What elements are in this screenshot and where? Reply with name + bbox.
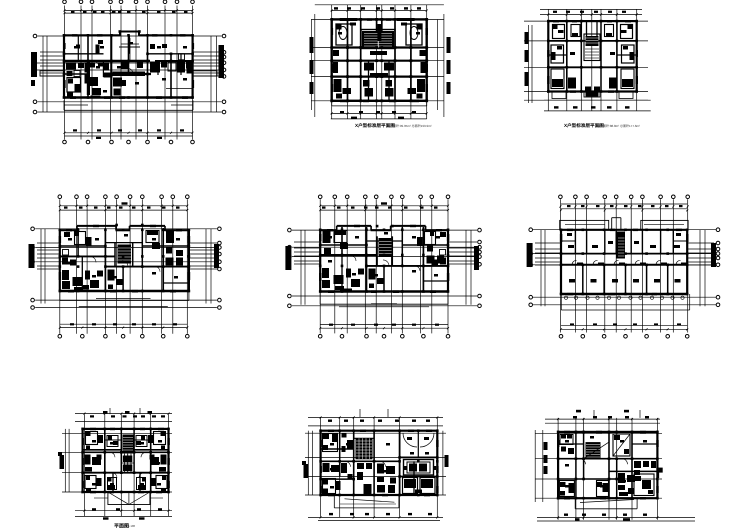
svg-text:每户面积:88.8m² 总面积177.6m²: 每户面积:88.8m² 总面积177.6m² xyxy=(597,124,640,128)
svg-text:每户面积:99.95m² 总面积199.9m²: 每户面积:99.95m² 总面积199.9m² xyxy=(387,124,432,128)
svg-text:平面图: 平面图 xyxy=(114,523,129,530)
svg-text:1:100: 1:100 xyxy=(128,524,135,528)
